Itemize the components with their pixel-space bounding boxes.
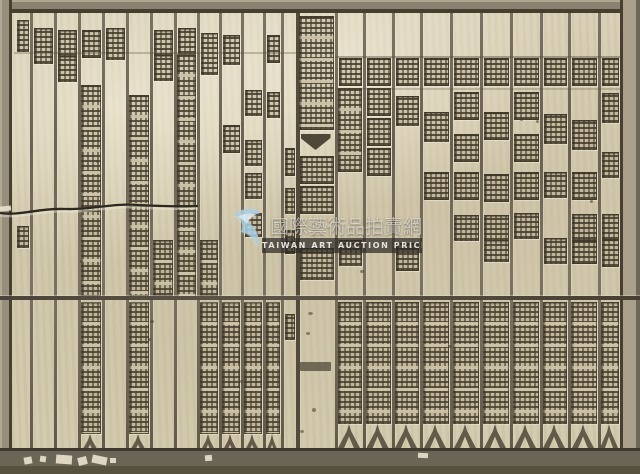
carved-character bbox=[367, 118, 391, 146]
carved-character bbox=[17, 20, 29, 52]
border-chip-mark bbox=[418, 453, 428, 459]
carved-character bbox=[602, 152, 619, 178]
carved-character bbox=[602, 58, 619, 86]
wood-speck bbox=[308, 312, 313, 315]
character-run bbox=[395, 302, 419, 424]
carved-character bbox=[514, 134, 539, 162]
carved-character bbox=[424, 112, 449, 142]
carved-character bbox=[300, 156, 334, 184]
carved-character bbox=[154, 55, 173, 81]
carved-character bbox=[572, 120, 597, 150]
character-run bbox=[543, 302, 567, 424]
character-run bbox=[513, 302, 539, 424]
watermark-english-band: TAIWAN ART AUCTION PRICE bbox=[262, 238, 422, 253]
border-chip-mark bbox=[56, 454, 73, 464]
carved-character bbox=[267, 35, 280, 63]
character-run bbox=[601, 302, 619, 424]
carved-character bbox=[514, 213, 539, 239]
carved-character bbox=[367, 88, 391, 116]
character-run bbox=[244, 302, 262, 434]
character-run bbox=[366, 302, 391, 424]
character-run bbox=[338, 88, 362, 172]
character-run bbox=[177, 54, 196, 298]
wood-speck bbox=[520, 118, 523, 121]
carved-character bbox=[484, 240, 509, 262]
carved-character bbox=[58, 56, 77, 82]
border-chip-mark bbox=[205, 455, 212, 462]
column-divider bbox=[102, 13, 105, 448]
carved-character bbox=[106, 28, 125, 60]
watermark-chinese-text: 國際藝術品拍賣網 bbox=[270, 216, 426, 238]
character-run bbox=[453, 302, 479, 424]
character-run bbox=[200, 302, 218, 434]
wood-speck bbox=[448, 345, 452, 348]
character-run bbox=[129, 95, 149, 298]
carved-character bbox=[17, 226, 29, 248]
carved-character bbox=[602, 239, 619, 267]
wood-speck bbox=[536, 120, 539, 123]
wood-speck bbox=[306, 332, 310, 335]
carved-character bbox=[424, 58, 449, 86]
horizontal-seam bbox=[0, 296, 640, 300]
wood-speck bbox=[148, 338, 151, 341]
carved-character bbox=[484, 174, 509, 202]
carved-character bbox=[454, 58, 479, 86]
carved-character bbox=[454, 92, 479, 120]
wood-speck bbox=[312, 408, 316, 412]
carved-character bbox=[484, 58, 509, 86]
character-run bbox=[81, 302, 101, 434]
character-run bbox=[200, 240, 218, 296]
column-divider bbox=[30, 13, 33, 448]
wood-speck bbox=[360, 270, 364, 273]
character-run bbox=[571, 302, 597, 424]
carved-character bbox=[285, 314, 295, 340]
carved-character bbox=[572, 214, 597, 240]
border-chip-mark bbox=[23, 456, 32, 464]
carved-character bbox=[245, 140, 262, 166]
carved-character bbox=[396, 96, 419, 126]
carved-character bbox=[514, 172, 539, 200]
carved-character bbox=[544, 172, 567, 198]
wood-speck bbox=[240, 380, 243, 383]
character-run bbox=[222, 302, 240, 434]
border-chip-mark bbox=[110, 458, 116, 463]
auction-watermark: 國際藝術品拍賣網 TAIWAN ART AUCTION PRICE bbox=[226, 203, 426, 257]
frame-border-top bbox=[0, 0, 640, 13]
carved-character bbox=[514, 58, 539, 86]
wood-speck bbox=[590, 200, 593, 203]
carved-character bbox=[454, 172, 479, 200]
carved-character bbox=[602, 214, 619, 240]
column-guide-line bbox=[335, 56, 620, 58]
wood-speck bbox=[150, 320, 154, 323]
carved-character bbox=[514, 92, 539, 120]
character-run bbox=[338, 302, 362, 424]
carved-character bbox=[572, 240, 597, 264]
carved-character bbox=[602, 93, 619, 123]
carved-character bbox=[267, 92, 280, 118]
carved-character bbox=[367, 58, 391, 86]
carved-character bbox=[285, 148, 295, 176]
character-run bbox=[81, 85, 101, 298]
center-column-bar bbox=[300, 362, 331, 371]
character-run bbox=[153, 240, 173, 296]
character-run bbox=[423, 302, 449, 424]
carved-character bbox=[367, 148, 391, 176]
wood-speck bbox=[80, 260, 83, 263]
carved-character bbox=[454, 134, 479, 162]
carved-character bbox=[484, 215, 509, 241]
carved-character bbox=[544, 238, 567, 264]
character-run bbox=[483, 302, 509, 424]
carved-character bbox=[178, 28, 196, 54]
woodblock-photo: 國際藝術品拍賣網 TAIWAN ART AUCTION PRICE bbox=[0, 0, 640, 474]
carved-character bbox=[245, 173, 262, 199]
carved-character bbox=[34, 28, 53, 64]
wood-speck bbox=[300, 430, 304, 433]
carved-character bbox=[572, 58, 597, 86]
carved-character bbox=[572, 172, 597, 200]
frame-border-right bbox=[620, 0, 640, 474]
wood-crack bbox=[0, 198, 200, 224]
carved-character bbox=[396, 58, 419, 86]
carved-character bbox=[223, 125, 240, 153]
carved-character bbox=[245, 90, 262, 116]
carved-character bbox=[484, 112, 509, 140]
carved-character bbox=[454, 215, 479, 241]
character-run bbox=[299, 16, 334, 130]
carved-character bbox=[424, 172, 449, 200]
column-guide-line bbox=[14, 52, 296, 54]
carved-character bbox=[223, 35, 240, 65]
character-run bbox=[129, 302, 149, 434]
wood-speck bbox=[96, 160, 99, 163]
character-run bbox=[266, 302, 280, 434]
carved-character bbox=[201, 33, 218, 75]
carved-character bbox=[544, 114, 567, 144]
carved-character bbox=[544, 58, 567, 86]
carved-character bbox=[339, 58, 362, 86]
frame-border-left bbox=[0, 0, 12, 474]
column-guide-line bbox=[335, 88, 620, 90]
border-chip-mark bbox=[40, 456, 47, 463]
